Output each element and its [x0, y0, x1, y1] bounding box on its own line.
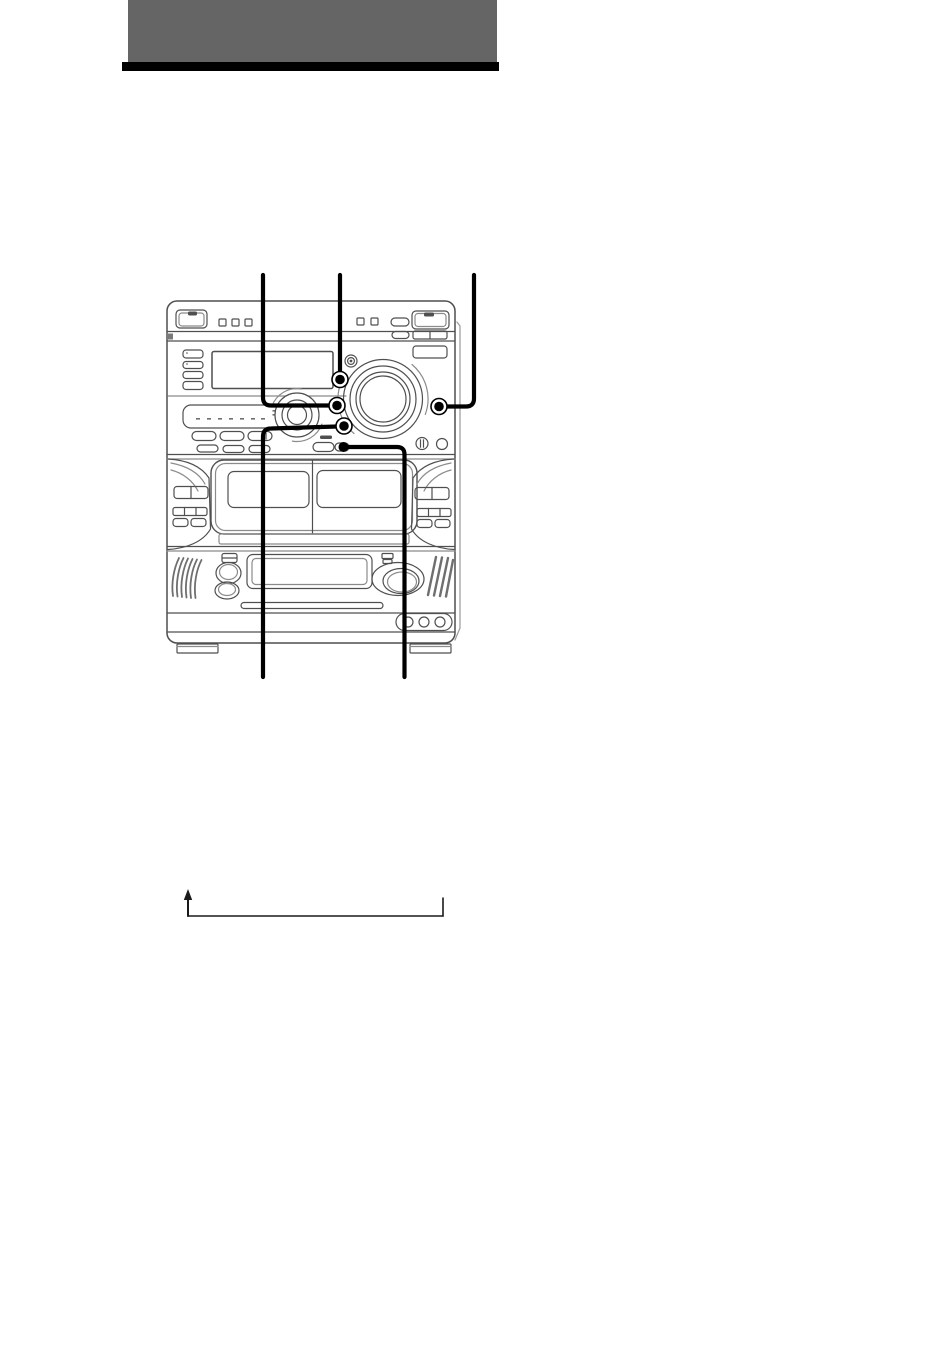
display-section — [183, 350, 357, 390]
oval-button-r1-2 — [220, 432, 244, 441]
row2-oval-button — [392, 332, 409, 339]
master-knob-inner — [388, 572, 417, 592]
display-side-button-1 — [183, 350, 203, 358]
stereo-system-drawing — [167, 301, 460, 653]
display-window — [212, 352, 333, 389]
cassette-window-b — [317, 471, 401, 508]
top-small-button-1 — [219, 319, 226, 326]
button-dot-1 — [186, 352, 188, 354]
function-buttons — [192, 432, 448, 453]
callout-dot-e — [339, 442, 349, 452]
manual-page-canvas — [0, 0, 950, 1346]
callout-dot-b — [332, 372, 348, 388]
bottom-section — [172, 554, 453, 609]
display-side-button-2 — [183, 362, 203, 369]
left-knob-2-inner — [219, 584, 236, 596]
callout-dot-a — [329, 398, 345, 414]
power-button-notch — [188, 312, 197, 316]
header-rule — [122, 62, 499, 71]
cd-tray-dashes — [196, 410, 279, 420]
callout-dots — [329, 372, 447, 453]
left-edge-tick — [168, 334, 173, 340]
top-oval-button — [391, 318, 409, 326]
right-wing-triple-button — [417, 509, 451, 517]
cd-tray — [183, 405, 283, 428]
loop-return-diagram — [184, 889, 443, 916]
left-wing-outline — [168, 459, 211, 550]
cassette-window-a — [228, 472, 309, 508]
left-wing-oval-1 — [173, 519, 188, 527]
left-knob-1-inner — [220, 565, 238, 580]
cassette-door-inner — [216, 464, 413, 531]
top-small-button-3 — [245, 319, 252, 326]
top-small-button-5 — [371, 318, 378, 325]
left-wing-oval-2 — [191, 519, 206, 527]
oval-button-r2-2 — [223, 446, 244, 453]
master-knob-tick-1 — [382, 554, 393, 559]
right-wing-outline — [412, 459, 455, 550]
callout-line-a — [263, 275, 330, 406]
top-right-button-notch — [424, 313, 434, 317]
indicator-circle-2 — [419, 617, 429, 627]
oval-button-r1-3 — [248, 432, 272, 441]
cd-tray-section — [183, 405, 283, 428]
display-side-button-4 — [183, 382, 203, 390]
top-small-button-2 — [232, 319, 239, 326]
rec-indicator-dash — [320, 436, 332, 440]
left-wing — [168, 459, 211, 550]
feet — [177, 644, 451, 653]
volume-knob-ring-3 — [356, 372, 410, 426]
top-panel — [176, 310, 449, 329]
volume-knob-ring-4 — [360, 376, 406, 422]
cassette-deck — [211, 460, 417, 544]
top-small-button-4 — [357, 318, 364, 325]
indicator-circle-3 — [435, 617, 445, 627]
foot-left — [177, 644, 218, 653]
left-wing-swoosh-1 — [171, 463, 205, 484]
right-wing-swoosh-1 — [417, 463, 451, 484]
mic-jack — [437, 439, 448, 450]
button-dot-2 — [186, 363, 188, 365]
manual-page — [0, 0, 950, 1346]
right-wing-oval-2 — [435, 520, 450, 528]
right-wing — [412, 459, 455, 550]
loop-diagram-arrowhead-icon — [184, 889, 192, 900]
oval-button-r2-1 — [197, 445, 218, 452]
display-side-button-3 — [183, 372, 203, 379]
oval-button-r2-3 — [249, 446, 270, 453]
small-round-button-dot — [350, 360, 353, 363]
header-title-band — [128, 0, 497, 62]
headphones-jack — [416, 438, 428, 450]
oval-button-r1-1 — [192, 432, 216, 441]
speaker-vent-right — [428, 557, 453, 597]
cassette-door-bottom-band — [219, 534, 409, 544]
volume-knob-ring-1 — [344, 360, 423, 439]
bottom-opening-inner — [252, 559, 367, 585]
row3-wide-button — [413, 346, 447, 358]
left-wing-triple-button — [173, 508, 207, 516]
right-wing-oval-1 — [417, 520, 432, 528]
callout-dot-d — [336, 418, 352, 434]
bottom-opening-outer — [247, 555, 372, 589]
foot-right — [410, 644, 451, 653]
callout-dot-c — [431, 399, 447, 415]
callout-lines — [263, 275, 474, 677]
oval-button-center — [313, 443, 334, 452]
speaker-vent-left — [172, 558, 201, 598]
